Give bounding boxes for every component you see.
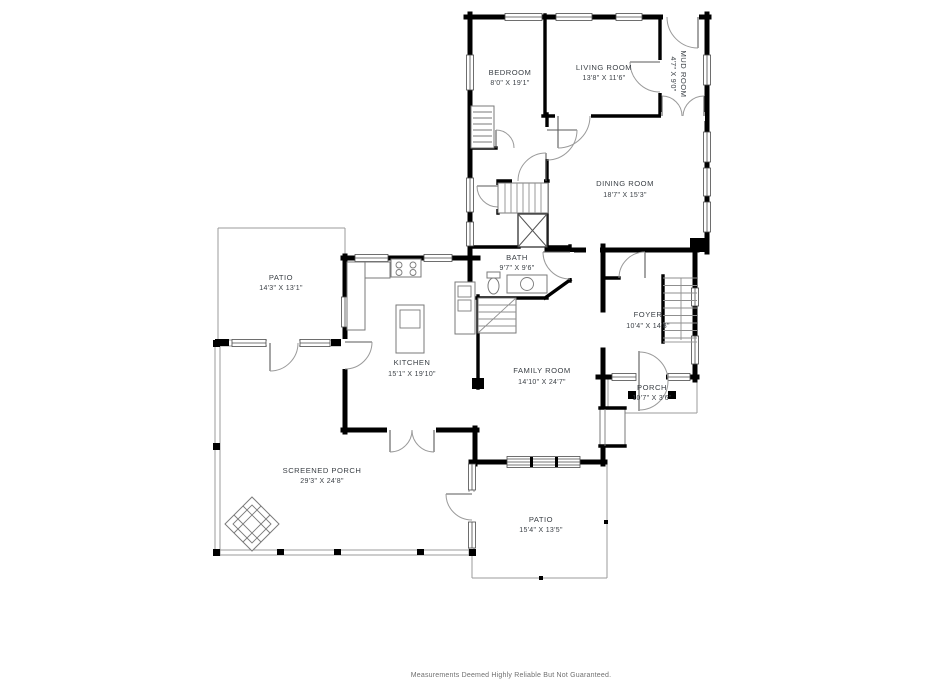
svg-text:DINING ROOM: DINING ROOM <box>596 179 654 188</box>
room-label-bedroom: BEDROOM 8'0" X 19'1" <box>489 68 532 87</box>
svg-text:29'3" X 24'8": 29'3" X 24'8" <box>300 478 344 485</box>
screen-door-patio-porch <box>270 343 298 371</box>
room-label-kitchen: KITCHEN 15'1" X 19'10" <box>388 358 436 378</box>
bedroom-closet <box>471 106 494 148</box>
svg-text:PATIO: PATIO <box>529 515 553 524</box>
svg-text:PORCH: PORCH <box>637 383 667 392</box>
svg-text:4'7" X 9'0": 4'7" X 9'0" <box>669 56 676 91</box>
door-bedroom <box>518 153 546 181</box>
svg-text:BEDROOM: BEDROOM <box>489 68 532 77</box>
wall-openings <box>267 13 705 522</box>
svg-text:KITCHEN: KITCHEN <box>394 358 431 367</box>
bath-vanity <box>507 275 547 293</box>
wall-end-block <box>472 378 484 389</box>
svg-text:PATIO: PATIO <box>269 273 293 282</box>
svg-text:SCREENED PORCH: SCREENED PORCH <box>283 466 362 475</box>
svg-text:13'8" X 11'6": 13'8" X 11'6" <box>583 75 626 82</box>
hot-tub <box>225 497 279 551</box>
room-label-living-room: LIVING ROOM 13'8" X 11'6" <box>576 63 632 82</box>
svg-text:14'3" X 13'1": 14'3" X 13'1" <box>259 285 303 292</box>
room-label-patio-lower: PATIO 15'4" X 13'5" <box>519 515 563 534</box>
svg-text:15'1" X 19'10": 15'1" X 19'10" <box>388 371 436 378</box>
room-label-patio-upper: PATIO 14'3" X 13'1" <box>259 273 303 292</box>
room-label-dining-room: DINING ROOM 18'7" X 15'3" <box>596 179 654 199</box>
svg-text:14'10" X 24'7": 14'10" X 24'7" <box>518 379 566 386</box>
door-bedroom-closet <box>496 130 514 148</box>
room-label-bath: BATH 9'7" X 9'6" <box>499 253 534 272</box>
svg-text:BATH: BATH <box>506 253 528 262</box>
stairs-basement <box>478 298 516 333</box>
door-foyer-closet <box>619 252 645 278</box>
disclaimer-text: Measurements Deemed Highly Reliable But … <box>411 672 612 679</box>
wall-corner-block <box>690 238 708 252</box>
svg-text:FOYER: FOYER <box>634 310 663 319</box>
doors <box>270 17 704 520</box>
kitchen-island <box>396 305 424 353</box>
door-living-mud <box>630 62 660 92</box>
svg-text:9'7" X 9'6": 9'7" X 9'6" <box>499 265 534 272</box>
svg-text:18'7" X 15'3": 18'7" X 15'3" <box>603 192 647 199</box>
stove <box>391 259 421 277</box>
svg-text:FAMILY ROOM: FAMILY ROOM <box>513 366 571 375</box>
svg-text:MUD ROOM: MUD ROOM <box>679 50 688 97</box>
fireplace <box>600 408 625 446</box>
chimney <box>518 214 547 247</box>
stairs-upper-hall <box>498 183 548 213</box>
svg-text:15'4" X 13'5": 15'4" X 13'5" <box>519 527 563 534</box>
room-label-screened-porch: SCREENED PORCH 29'3" X 24'8" <box>283 466 362 485</box>
window-band <box>507 457 580 468</box>
room-label-family-room: FAMILY ROOM 14'10" X 24'7" <box>513 366 571 386</box>
svg-text:8'0" X 19'1": 8'0" X 19'1" <box>490 80 529 87</box>
floor-plan-page: BEDROOM 8'0" X 19'1" LIVING ROOM 13'8" X… <box>0 0 930 697</box>
svg-text:LIVING ROOM: LIVING ROOM <box>576 63 632 72</box>
svg-text:10'4" X 14'8": 10'4" X 14'8" <box>626 323 670 330</box>
svg-text:10'7" X 3'6": 10'7" X 3'6" <box>632 395 671 402</box>
toilet <box>487 272 500 294</box>
door-hall <box>477 186 498 207</box>
room-label-mud-room: MUD ROOM 4'7" X 9'0" <box>669 50 688 97</box>
floor-plan: BEDROOM 8'0" X 19'1" LIVING ROOM 13'8" X… <box>0 0 930 697</box>
